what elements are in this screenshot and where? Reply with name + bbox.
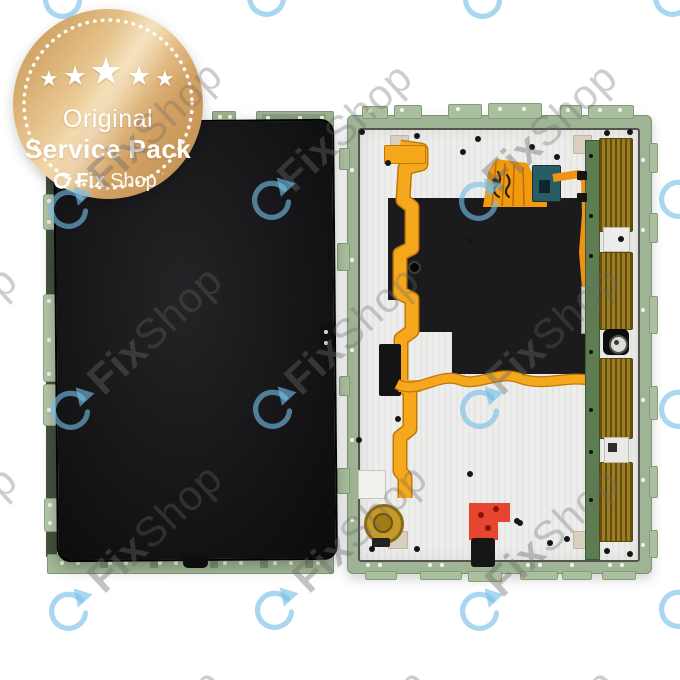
screw <box>414 546 420 552</box>
screw <box>554 154 560 160</box>
frame-hole <box>498 107 502 111</box>
badge-star-icon: ★ <box>39 68 59 90</box>
frame-hole <box>350 518 354 522</box>
back-frame-tab <box>520 571 558 580</box>
frame-hole <box>570 563 574 567</box>
badge-dotted-ring <box>13 9 203 199</box>
frame-hole <box>641 478 645 482</box>
back-frame-tab <box>649 386 658 420</box>
frame-hole <box>368 109 372 113</box>
screw <box>359 129 365 135</box>
frame-hole <box>350 258 354 262</box>
side-pcb-component <box>589 498 593 502</box>
front-tab-hole <box>48 521 51 524</box>
badge-star-icon: ★ <box>89 53 123 91</box>
frame-hole <box>641 158 645 162</box>
front-tab-hole <box>47 199 50 202</box>
back-frame-tab <box>337 468 350 494</box>
antenna-coil <box>599 138 633 232</box>
main-connector-black <box>471 538 495 567</box>
screw <box>492 178 498 184</box>
front-bottom-hole <box>273 561 277 565</box>
screw <box>514 518 520 524</box>
coil-tail <box>372 538 390 547</box>
front-bottom-hole <box>316 561 320 565</box>
front-bottom-hole <box>289 561 293 565</box>
logo-text-fix: Fix <box>76 170 105 193</box>
front-tab-hole <box>47 372 50 375</box>
screw <box>467 471 473 477</box>
front-top-tab-hole <box>218 115 221 118</box>
frame-hole <box>440 563 444 567</box>
antenna-gap-chip <box>608 443 617 452</box>
original-service-pack-badge: ★★★★★ Original Service Pack FixShop’ <box>13 9 203 199</box>
screw <box>604 548 610 554</box>
refresh-arrow-icon <box>52 172 71 191</box>
frame-hole <box>618 108 622 112</box>
back-frame-tab <box>362 106 388 119</box>
camera-lens-pupil <box>614 340 619 345</box>
back-frame-tab <box>588 105 634 119</box>
back-frame-tab <box>339 376 350 396</box>
frame-hole <box>641 308 645 312</box>
screw <box>564 536 570 542</box>
frame-hole <box>350 438 354 442</box>
logo-text-shop: Shop <box>110 170 157 193</box>
front-tab-hole <box>47 408 50 411</box>
fixshop-logo: FixShop’ <box>13 170 203 193</box>
screw <box>460 149 466 155</box>
front-side-tab-hole <box>324 341 328 345</box>
frame-hole <box>400 108 404 112</box>
back-frame-tab <box>649 213 658 243</box>
back-frame-tab <box>337 243 350 271</box>
badge-star-icon: ★ <box>155 68 175 90</box>
back-frame-tab <box>468 571 502 582</box>
frame-hole <box>522 107 526 111</box>
front-bottom-hole <box>174 561 178 565</box>
white-flex-pad <box>358 470 386 499</box>
screw <box>547 540 553 546</box>
screw <box>356 437 362 443</box>
back-frame-tab <box>339 148 350 170</box>
front-tab-hole <box>47 338 50 341</box>
back-frame-tab <box>394 105 422 119</box>
screw <box>604 130 610 136</box>
side-pcb-nub <box>577 171 587 180</box>
frame-hole <box>428 563 432 567</box>
front-tab-hole <box>48 503 51 506</box>
frame-hole <box>456 107 460 111</box>
frame-hole <box>608 563 612 567</box>
screw <box>385 160 391 166</box>
antenna-coil <box>599 358 633 439</box>
antenna-coil <box>599 462 633 542</box>
back-frame-tab <box>649 296 658 334</box>
flex-branch <box>398 380 422 392</box>
back-frame-tab <box>602 571 636 580</box>
antenna-gap-screw <box>618 236 624 242</box>
screw <box>529 144 535 150</box>
frame-hole <box>350 348 354 352</box>
front-bottom-hole <box>124 561 128 565</box>
frame-hole <box>598 108 602 112</box>
badge-star-icon: ★ <box>63 63 87 90</box>
badge-star-icon: ★ <box>127 63 151 90</box>
side-pcb-component <box>589 254 593 258</box>
frame-hole <box>350 168 354 172</box>
front-bottom-hole <box>60 561 64 565</box>
side-pcb-component <box>589 408 593 412</box>
graphite-hole <box>407 243 417 253</box>
front-top-tab-hole <box>228 115 231 118</box>
vibration-coil-inner <box>373 513 393 533</box>
antenna-coil <box>599 252 633 330</box>
side-pcb-component <box>589 214 593 218</box>
red-connector-hole <box>493 506 499 512</box>
badge-text-service-pack: Service Pack <box>13 134 203 165</box>
back-frame-tab <box>649 530 658 558</box>
side-pcb-component <box>589 350 593 354</box>
front-side-tab-hole <box>324 330 328 334</box>
screw <box>467 238 473 244</box>
frame-hole <box>538 563 542 567</box>
back-frame-tab <box>649 466 658 498</box>
back-frame-tab <box>488 103 542 119</box>
graphite-screw-hole <box>408 261 421 274</box>
screw <box>369 546 375 552</box>
badge-text-original: Original <box>13 105 203 134</box>
frame-hole <box>641 228 645 232</box>
frame-hole <box>366 563 370 567</box>
red-connector-hole <box>478 512 484 518</box>
screw <box>395 416 401 422</box>
screw <box>627 551 633 557</box>
front-bottom-notch <box>183 555 208 568</box>
front-bottom-hole <box>239 561 243 565</box>
back-frame-tab <box>420 571 462 580</box>
side-pcb-component <box>589 450 593 454</box>
front-side-tab <box>320 324 334 352</box>
red-connector-hole <box>485 525 491 531</box>
logo-trademark-mark: ’ <box>162 171 164 181</box>
screw <box>414 133 420 139</box>
frame-hole <box>641 543 645 547</box>
side-pcb-nub <box>577 193 587 202</box>
frame-hole <box>620 563 624 567</box>
back-frame-tab <box>448 104 482 119</box>
screw <box>627 129 633 135</box>
back-frame-tab <box>649 143 658 173</box>
connector-pcb-chip <box>539 180 550 193</box>
front-tab-hole <box>47 299 50 302</box>
back-frame-tab <box>560 105 582 119</box>
back-frame-tab <box>365 571 397 580</box>
front-bottom-hole <box>223 561 227 565</box>
frame-hole <box>526 563 530 567</box>
frame-hole <box>566 108 570 112</box>
front-bottom-hole <box>158 561 162 565</box>
antenna-gap-pad <box>603 227 630 252</box>
front-tab-hole <box>47 220 50 223</box>
frame-hole <box>378 563 382 567</box>
frame-hole <box>641 398 645 402</box>
back-frame-tab <box>562 571 592 580</box>
product-photo: ★★★★★ Original Service Pack FixShop’ Fix… <box>0 0 680 680</box>
screw <box>475 136 481 142</box>
side-pcb-component <box>589 154 593 158</box>
